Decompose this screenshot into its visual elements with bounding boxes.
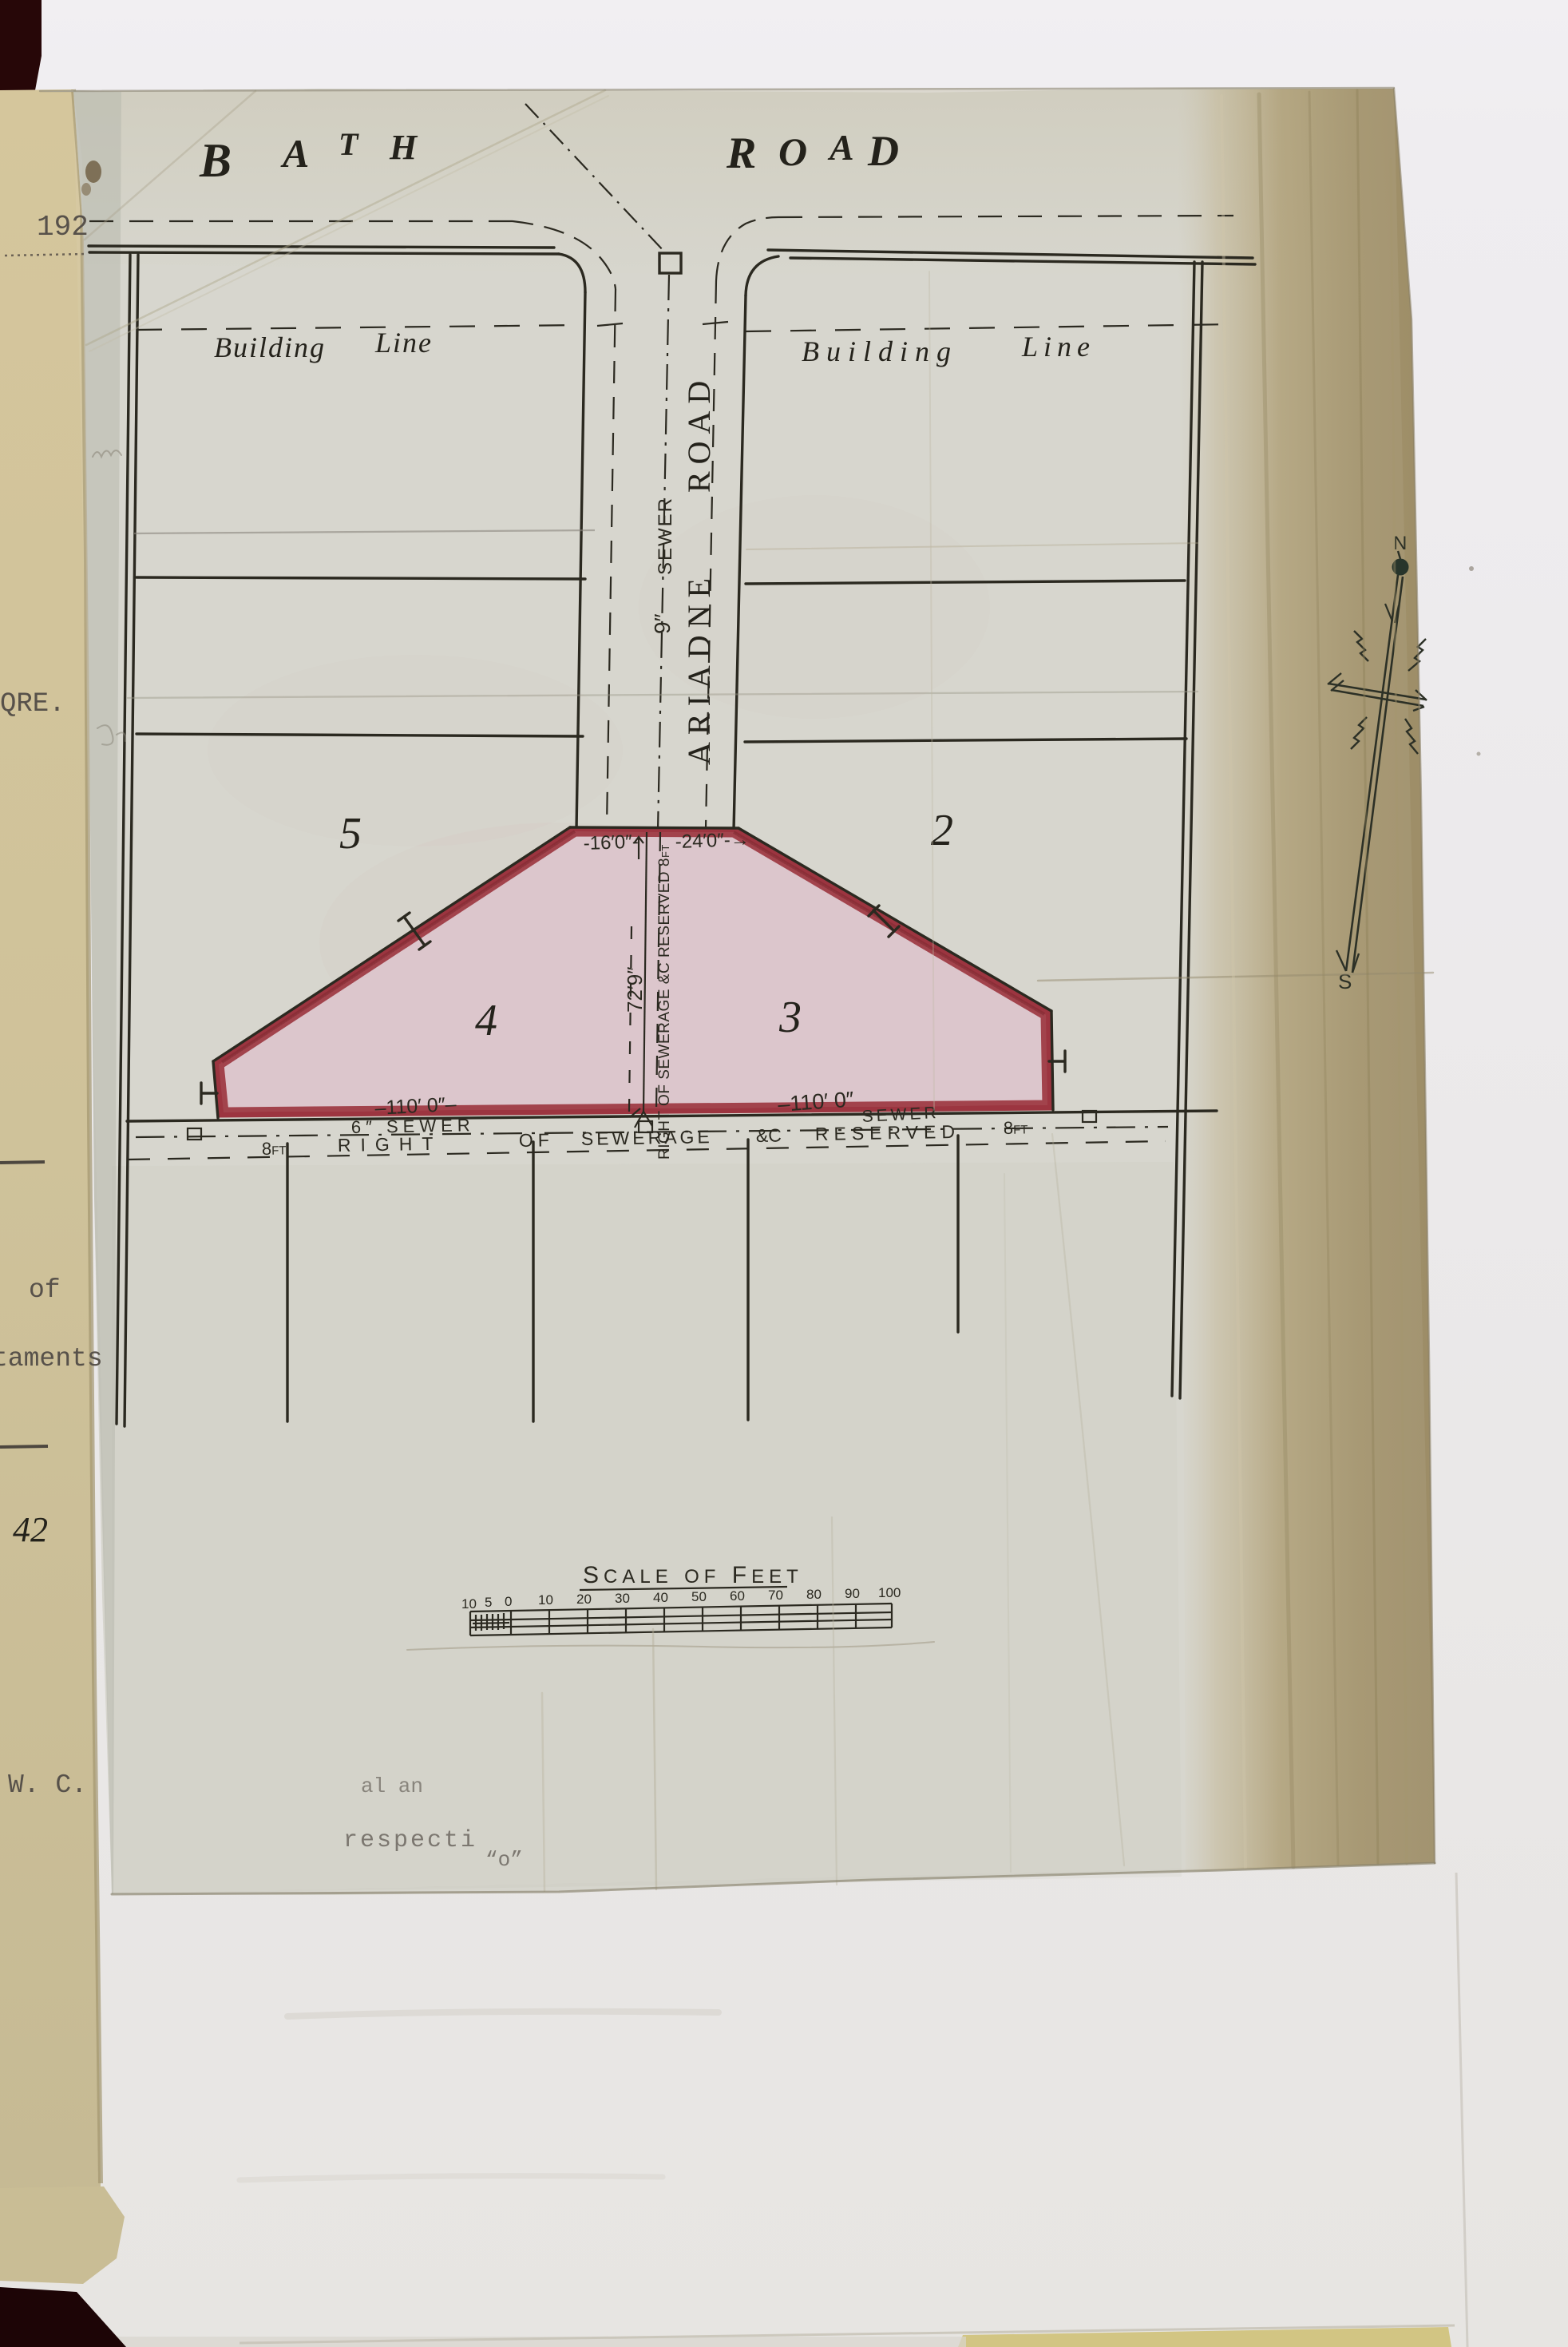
svg-text:A: A [827, 127, 854, 168]
svg-text:A: A [280, 131, 309, 176]
svg-text:50: 50 [691, 1589, 707, 1604]
svg-text:O: O [778, 129, 807, 174]
svg-text:RIGHT: RIGHT [338, 1133, 443, 1156]
svg-text:10: 10 [538, 1592, 553, 1608]
svg-text:192: 192 [37, 211, 89, 244]
svg-text:QRE.: QRE. [0, 689, 65, 720]
svg-text:40: 40 [653, 1590, 668, 1605]
svg-text:OF: OF [519, 1129, 554, 1151]
svg-text:B: B [199, 134, 232, 187]
svg-text:72′9″: 72′9″ [623, 967, 647, 1013]
svg-text:taments: taments [0, 1344, 103, 1374]
svg-text:9″: 9″ [650, 613, 675, 634]
svg-text:10: 10 [461, 1596, 477, 1612]
svg-text:SEWER: SEWER [655, 497, 676, 575]
svg-text:H: H [389, 128, 418, 167]
svg-text:“o”: “o” [485, 1848, 523, 1872]
svg-text:RESERVED: RESERVED [815, 1121, 961, 1144]
svg-text:respecti: respecti [343, 1827, 477, 1854]
svg-text:W. C.: W. C. [8, 1770, 87, 1800]
svg-text:60: 60 [730, 1588, 745, 1604]
svg-text:&C: &C [756, 1124, 782, 1146]
svg-text:RIGHT OF SEWERAGE &C RESERVED: RIGHT OF SEWERAGE &C RESERVED 8FT [656, 844, 673, 1160]
svg-text:S: S [1338, 969, 1352, 993]
svg-text:Building: Building [214, 331, 326, 363]
svg-text:4: 4 [475, 996, 497, 1045]
svg-text:20: 20 [576, 1592, 592, 1607]
svg-text:90: 90 [845, 1586, 860, 1601]
svg-text:R: R [726, 129, 756, 178]
svg-text:-16′0″-: -16′0″- [583, 831, 639, 854]
svg-text:D: D [867, 127, 899, 175]
svg-text:T: T [339, 126, 359, 162]
svg-text:2: 2 [931, 806, 953, 855]
svg-text:5: 5 [339, 809, 362, 858]
svg-text:-24′0″-→: -24′0″-→ [675, 829, 750, 853]
svg-text:SEWERAGE: SEWERAGE [581, 1126, 713, 1149]
svg-text:SCALE OF FEET: SCALE OF FEET [583, 1562, 803, 1588]
svg-text:100: 100 [878, 1585, 901, 1600]
svg-text:0: 0 [505, 1594, 512, 1609]
svg-text:30: 30 [615, 1591, 630, 1606]
svg-text:of: of [29, 1275, 61, 1305]
svg-text:ARIADNE ROAD: ARIADNE ROAD [681, 374, 717, 765]
svg-text:Line: Line [1021, 331, 1095, 363]
svg-text:5: 5 [485, 1595, 492, 1610]
svg-text:80: 80 [806, 1587, 822, 1602]
svg-text:70: 70 [768, 1588, 783, 1603]
svg-text:al an: al an [361, 1774, 423, 1798]
svg-text:Building: Building [802, 335, 958, 367]
svg-text:3: 3 [778, 993, 802, 1042]
svg-text:42: 42 [13, 1510, 48, 1549]
svg-text:Line: Line [374, 327, 433, 359]
